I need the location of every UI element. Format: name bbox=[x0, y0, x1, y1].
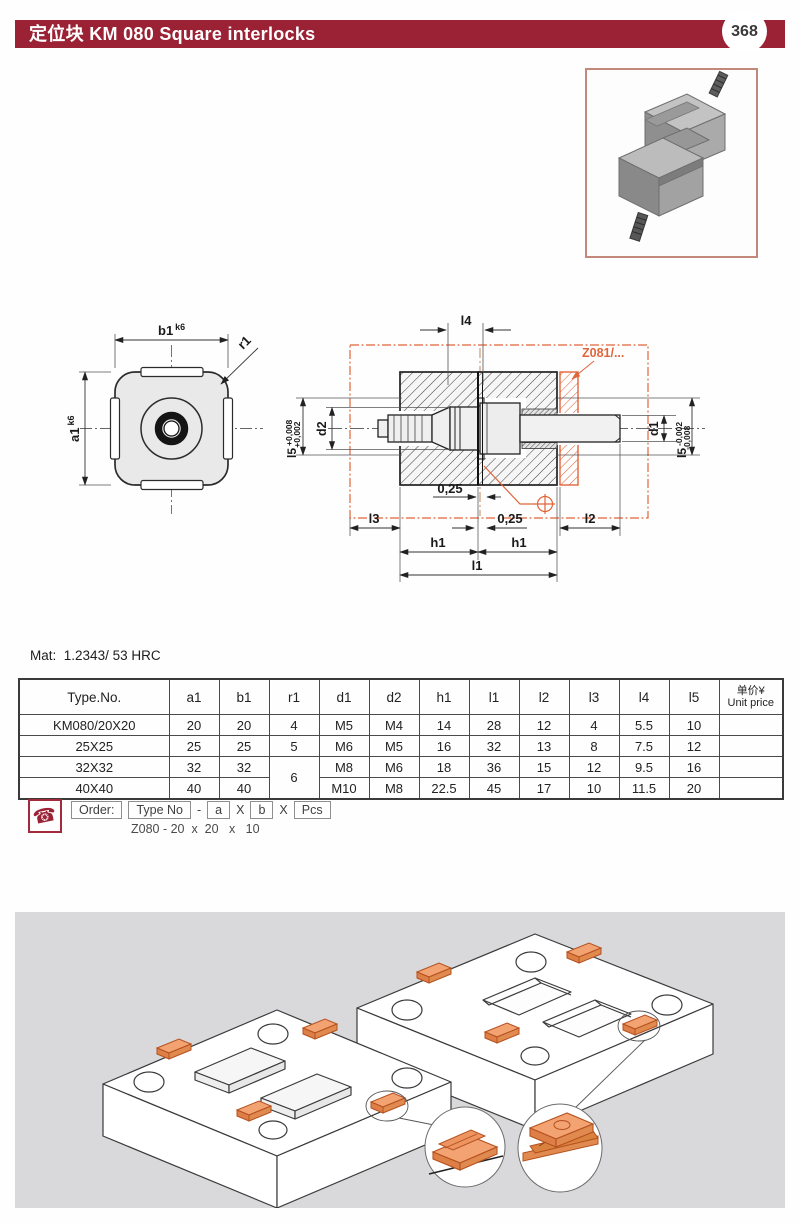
value-cell: M5 bbox=[319, 715, 369, 736]
order-label: Order: bbox=[71, 801, 122, 819]
column-header: Type.No. bbox=[19, 679, 169, 715]
unit-price-cell bbox=[719, 778, 783, 800]
column-header: h1 bbox=[419, 679, 469, 715]
value-cell: M4 bbox=[369, 715, 419, 736]
value-cell: 22.5 bbox=[419, 778, 469, 800]
material-value: 1.2343/ 53 HRC bbox=[64, 648, 161, 663]
order-x2: X bbox=[279, 803, 287, 817]
value-cell: 28 bbox=[469, 715, 519, 736]
dim-l5-left: l5+0,008+0,002 bbox=[284, 419, 302, 458]
value-cell: 16 bbox=[419, 736, 469, 757]
phone-icon-box: ☎ bbox=[28, 799, 62, 833]
dim-gap-bottom: 0,25 bbox=[497, 511, 522, 526]
application-illustration bbox=[15, 912, 785, 1208]
type-no-cell: 25X25 bbox=[19, 736, 169, 757]
dim-d1: d1 bbox=[647, 421, 661, 436]
table-row: 40X404040M10M822.545171011.520 bbox=[19, 778, 783, 800]
dim-l1: l1 bbox=[472, 558, 483, 573]
value-cell: 6 bbox=[269, 757, 319, 800]
dim-a1: a1k6 bbox=[66, 416, 82, 442]
unit-price-cell bbox=[719, 715, 783, 736]
value-cell: 32 bbox=[169, 757, 219, 778]
value-cell: M6 bbox=[369, 757, 419, 778]
value-cell: 36 bbox=[469, 757, 519, 778]
product-photo-frame bbox=[585, 68, 758, 258]
header-bar: 定位块 KM 080 Square interlocks bbox=[15, 20, 785, 48]
value-cell: 20 bbox=[669, 778, 719, 800]
dim-l2: l2 bbox=[585, 511, 596, 526]
value-cell: 32 bbox=[219, 757, 269, 778]
order-example: Z080 - 20 x 20 x 10 bbox=[131, 822, 260, 836]
technical-drawings: b1k6 a1k6 r1 bbox=[0, 290, 800, 620]
value-cell: 40 bbox=[169, 778, 219, 800]
order-a: a bbox=[207, 801, 230, 819]
lower-block bbox=[619, 128, 709, 216]
unit-price-cell bbox=[719, 736, 783, 757]
column-header: l2 bbox=[519, 679, 569, 715]
column-header: l5 bbox=[669, 679, 719, 715]
value-cell: 45 bbox=[469, 778, 519, 800]
value-cell: 9.5 bbox=[619, 757, 669, 778]
dim-gap-top: 0,25 bbox=[437, 481, 462, 496]
order-pcs: Pcs bbox=[294, 801, 331, 819]
value-cell: 11.5 bbox=[619, 778, 669, 800]
value-cell: 10 bbox=[669, 715, 719, 736]
column-header-unit-price: 单价¥Unit price bbox=[719, 679, 783, 715]
dim-r1: r1 bbox=[235, 333, 254, 352]
material-note: Mat: 1.2343/ 53 HRC bbox=[30, 648, 161, 663]
value-cell: 20 bbox=[219, 715, 269, 736]
type-no-cell: KM080/20X20 bbox=[19, 715, 169, 736]
page-number: 368 bbox=[731, 23, 758, 41]
value-cell: 40 bbox=[219, 778, 269, 800]
order-dash: - bbox=[197, 803, 201, 817]
value-cell: M6 bbox=[319, 736, 369, 757]
detail-callout-assembled bbox=[518, 1104, 602, 1192]
footer-illustration-panel bbox=[15, 912, 785, 1208]
phone-icon: ☎ bbox=[31, 804, 58, 828]
unit-price-cell bbox=[719, 757, 783, 778]
value-cell: M10 bbox=[319, 778, 369, 800]
value-cell: 7.5 bbox=[619, 736, 669, 757]
value-cell: 10 bbox=[569, 778, 619, 800]
value-cell: 25 bbox=[169, 736, 219, 757]
column-header: l4 bbox=[619, 679, 669, 715]
value-cell: 4 bbox=[569, 715, 619, 736]
value-cell: 13 bbox=[519, 736, 569, 757]
material-label: Mat: bbox=[30, 648, 56, 663]
product-photo bbox=[587, 70, 756, 256]
value-cell: 4 bbox=[269, 715, 319, 736]
value-cell: 14 bbox=[419, 715, 469, 736]
column-header: d1 bbox=[319, 679, 369, 715]
column-header: a1 bbox=[169, 679, 219, 715]
value-cell: 8 bbox=[569, 736, 619, 757]
value-cell: 5.5 bbox=[619, 715, 669, 736]
bottom-threaded-stud bbox=[630, 212, 648, 241]
z081-reference-label: Z081/... bbox=[582, 346, 624, 360]
column-header: l3 bbox=[569, 679, 619, 715]
table-header-row: Type.No.a1b1r1d1d2h1l1l2l3l4l5单价¥Unit pr… bbox=[19, 679, 783, 715]
value-cell: M8 bbox=[369, 778, 419, 800]
value-cell: 17 bbox=[519, 778, 569, 800]
value-cell: 18 bbox=[419, 757, 469, 778]
type-no-cell: 32X32 bbox=[19, 757, 169, 778]
section-view-drawing: l4 l5+0,008+0,002 d2 d1 l5-0,002-0,008 Z… bbox=[284, 313, 705, 582]
table-row: 25X2525255M6M516321387.512 bbox=[19, 736, 783, 757]
page-number-badge: 368 bbox=[722, 10, 767, 53]
order-b: b bbox=[250, 801, 273, 819]
order-type-no: Type No bbox=[128, 801, 191, 819]
top-threaded-stud bbox=[709, 71, 728, 97]
column-header: b1 bbox=[219, 679, 269, 715]
type-no-cell: 40X40 bbox=[19, 778, 169, 800]
spec-table: Type.No.a1b1r1d1d2h1l1l2l3l4l5单价¥Unit pr… bbox=[18, 678, 784, 800]
value-cell: 25 bbox=[219, 736, 269, 757]
catalog-page: 定位块 KM 080 Square interlocks 368 bbox=[0, 0, 800, 1225]
value-cell: 16 bbox=[669, 757, 719, 778]
order-x1: X bbox=[236, 803, 244, 817]
dim-h1-right: h1 bbox=[511, 535, 526, 550]
dim-d2: d2 bbox=[315, 421, 329, 436]
dim-l4: l4 bbox=[461, 313, 473, 328]
column-header: l1 bbox=[469, 679, 519, 715]
column-header: r1 bbox=[269, 679, 319, 715]
value-cell: 32 bbox=[469, 736, 519, 757]
page-title: 定位块 KM 080 Square interlocks bbox=[15, 20, 785, 48]
dim-l3: l3 bbox=[369, 511, 380, 526]
detail-callout-female bbox=[425, 1107, 505, 1187]
dim-h1-left: h1 bbox=[430, 535, 445, 550]
value-cell: 15 bbox=[519, 757, 569, 778]
table-row: 32X3232326M8M6183615129.516 bbox=[19, 757, 783, 778]
column-header: d2 bbox=[369, 679, 419, 715]
value-cell: 5 bbox=[269, 736, 319, 757]
value-cell: 12 bbox=[519, 715, 569, 736]
top-view-drawing: b1k6 a1k6 r1 bbox=[66, 322, 263, 514]
value-cell: M8 bbox=[319, 757, 369, 778]
table-row: KM080/20X2020204M5M414281245.510 bbox=[19, 715, 783, 736]
dim-l5-right: l5-0,002-0,008 bbox=[674, 422, 692, 458]
value-cell: 20 bbox=[169, 715, 219, 736]
dim-b1: b1k6 bbox=[158, 322, 185, 338]
value-cell: 12 bbox=[569, 757, 619, 778]
value-cell: 12 bbox=[669, 736, 719, 757]
value-cell: M5 bbox=[369, 736, 419, 757]
